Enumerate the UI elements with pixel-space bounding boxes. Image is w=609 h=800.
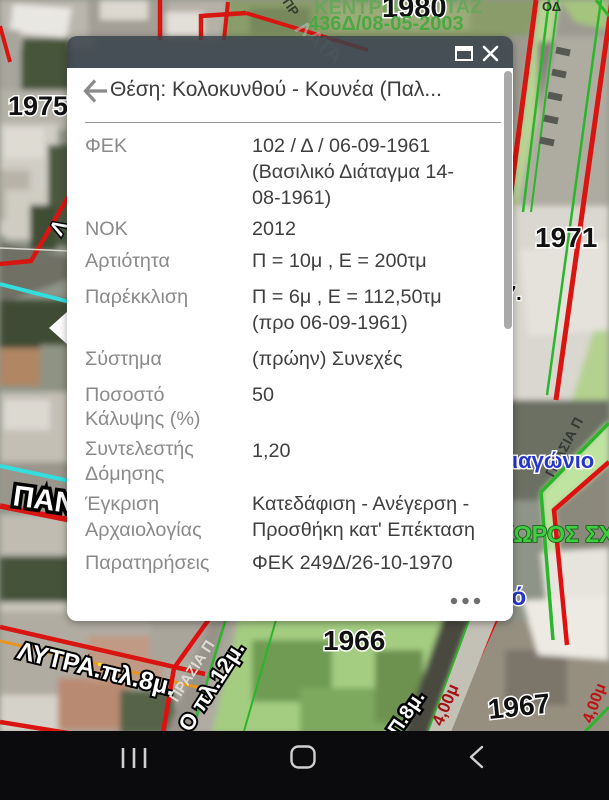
svg-text:1971: 1971 <box>535 222 597 253</box>
svg-text:ΟΔ: ΟΔ <box>542 0 561 14</box>
svg-text:ΧΩΡΟΣ ΣΧ: ΧΩΡΟΣ ΣΧ <box>498 521 609 547</box>
svg-text:1967: 1967 <box>486 688 551 725</box>
svg-text:1975: 1975 <box>8 91 68 121</box>
svg-text:436Δ/08-05-2003: 436Δ/08-05-2003 <box>308 13 464 35</box>
svg-text:1966: 1966 <box>323 625 385 656</box>
svg-text:ιαγώνιο: ιαγώνιο <box>512 448 594 473</box>
svg-text:ό: ό <box>511 583 526 611</box>
